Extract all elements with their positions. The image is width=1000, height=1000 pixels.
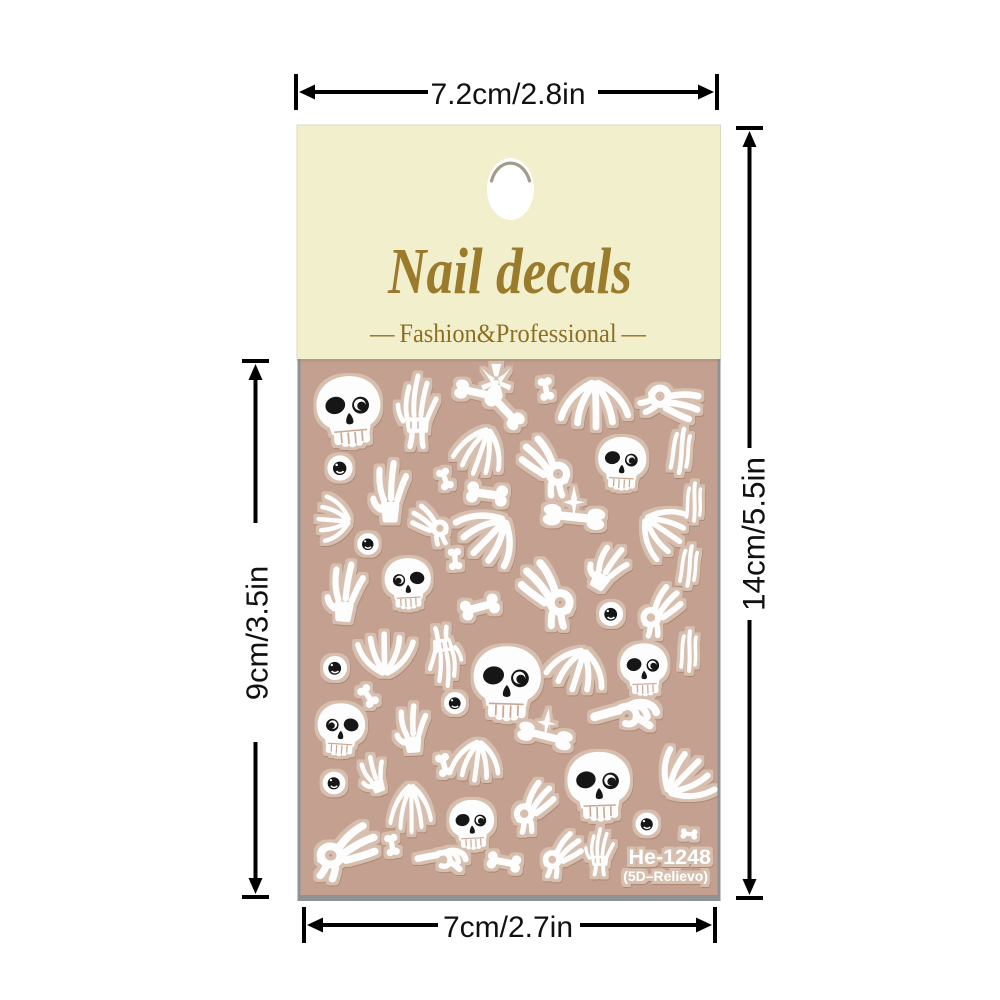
svg-text:7cm/2.7in: 7cm/2.7in bbox=[443, 911, 573, 944]
svg-text:— Fashion&Professional —: — Fashion&Professional — bbox=[369, 319, 647, 348]
svg-text:9cm/3.5in: 9cm/3.5in bbox=[240, 566, 275, 700]
svg-text:7.2cm/2.8in: 7.2cm/2.8in bbox=[430, 78, 585, 111]
svg-text:(5D–Relievo): (5D–Relievo) bbox=[623, 868, 708, 884]
svg-text:Nail decals: Nail decals bbox=[387, 235, 632, 308]
svg-text:He-1248: He-1248 bbox=[629, 845, 712, 869]
svg-text:14cm/5.5in: 14cm/5.5in bbox=[736, 457, 772, 611]
